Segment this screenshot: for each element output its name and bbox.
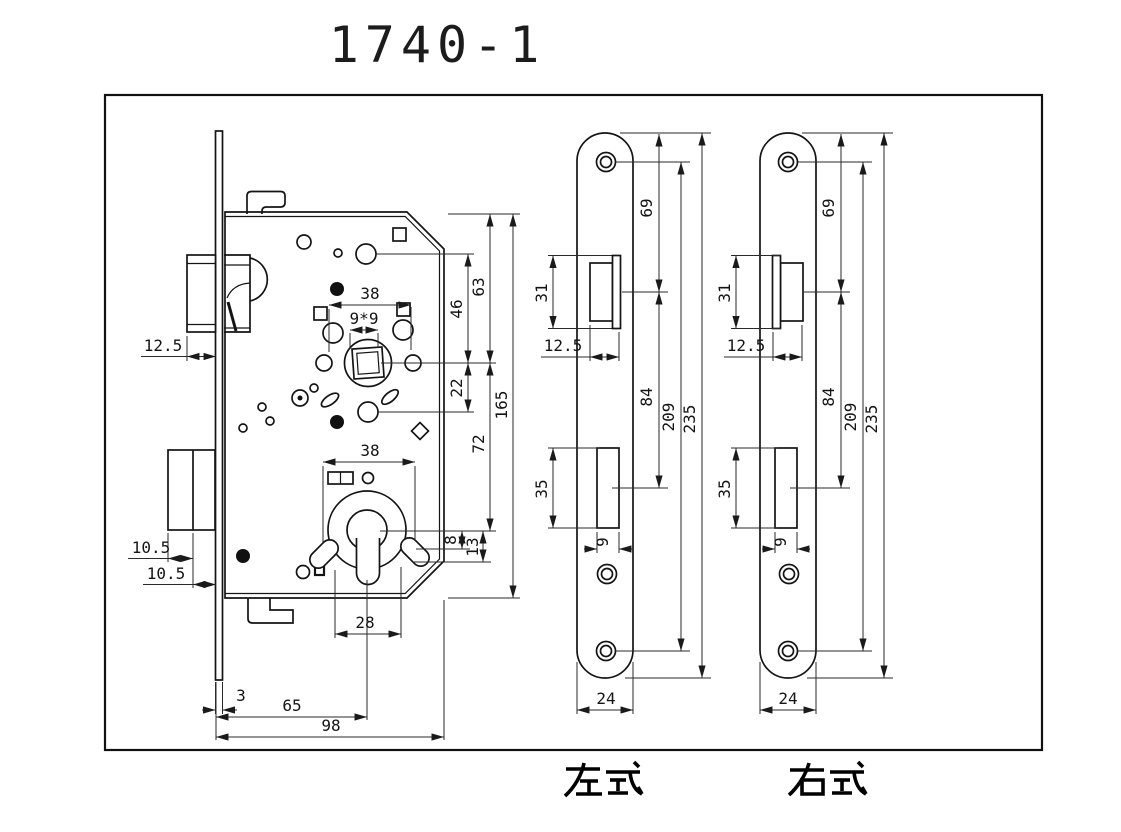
svg-text:31: 31 (532, 283, 551, 302)
lock-body-view: 38 9*9 12.5 10.5 10.5 (128, 131, 520, 740)
svg-text:24: 24 (778, 689, 797, 708)
svg-text:9: 9 (593, 537, 612, 547)
svg-text:10.5: 10.5 (132, 538, 171, 557)
svg-text:98: 98 (321, 716, 340, 735)
svg-text:3: 3 (236, 686, 246, 705)
drawing-sheet: 1740-1 (0, 0, 1121, 832)
svg-text:12.5: 12.5 (727, 336, 766, 355)
svg-text:31: 31 (715, 283, 734, 302)
svg-text:12.5: 12.5 (544, 336, 583, 355)
faceplate-left-view: 31 12.5 69 84 209 235 (532, 133, 711, 714)
faceplate-right-view: 31 12.5 69 84 209 235 (715, 133, 893, 714)
svg-text:209: 209 (841, 403, 860, 432)
label-left-type: 左式 (565, 762, 642, 796)
cad-drawing: 1740-1 (0, 0, 1121, 832)
svg-text:84: 84 (819, 387, 838, 406)
svg-text:8: 8 (441, 535, 460, 545)
svg-text:235: 235 (862, 405, 881, 434)
dim-faceplate-thickness: 3 (202, 682, 246, 714)
svg-text:24: 24 (596, 689, 615, 708)
dim-spindle-to-cylinder: 72 (469, 363, 490, 531)
svg-text:35: 35 (715, 479, 734, 498)
label-right-type: 右式 (789, 762, 866, 796)
svg-text:63: 63 (469, 277, 488, 296)
dim-spindle-to-hole: 22 (447, 363, 468, 412)
svg-text:9: 9 (771, 537, 790, 547)
dim-total-height: 165 (492, 214, 513, 598)
latch-cutout (590, 256, 621, 329)
faceplate-edge (216, 131, 223, 680)
dim-latch-protrusion: 12.5 (141, 336, 216, 361)
svg-text:10.5: 10.5 (147, 564, 186, 583)
svg-text:35: 35 (532, 479, 551, 498)
svg-text:69: 69 (819, 198, 838, 217)
svg-text:13: 13 (463, 537, 482, 556)
faceplate-plate (577, 133, 633, 678)
drawing-title: 1740-1 (329, 16, 546, 74)
svg-text:165: 165 (492, 391, 511, 420)
svg-text:235: 235 (680, 405, 699, 434)
svg-text:65: 65 (282, 696, 301, 715)
svg-text:209: 209 (659, 403, 678, 432)
dim-hole-to-spindle: 46 (447, 254, 468, 363)
dim-bolt-throw-a: 10.5 (128, 533, 193, 562)
svg-text:84: 84 (637, 387, 656, 406)
faceplate-plate (760, 133, 816, 678)
deadbolt (168, 450, 215, 530)
svg-text:28: 28 (355, 613, 374, 632)
svg-text:69: 69 (637, 198, 656, 217)
dim-cyl-offset-b: 13 (463, 531, 483, 562)
svg-text:12.5: 12.5 (144, 336, 183, 355)
svg-text:22: 22 (447, 378, 466, 397)
svg-text:38: 38 (360, 284, 379, 303)
svg-text:72: 72 (469, 434, 488, 453)
dim-body-depth: 98 (216, 600, 444, 740)
keyhole-stem (357, 538, 380, 585)
svg-text:46: 46 (447, 299, 466, 318)
latch-cutout (773, 256, 804, 329)
svg-text:9*9: 9*9 (350, 309, 379, 328)
dim-top-to-spindle: 63 (469, 214, 490, 363)
bottom-mounting-tab (248, 598, 293, 623)
top-mounting-tab (247, 192, 285, 215)
svg-text:38: 38 (360, 441, 379, 460)
